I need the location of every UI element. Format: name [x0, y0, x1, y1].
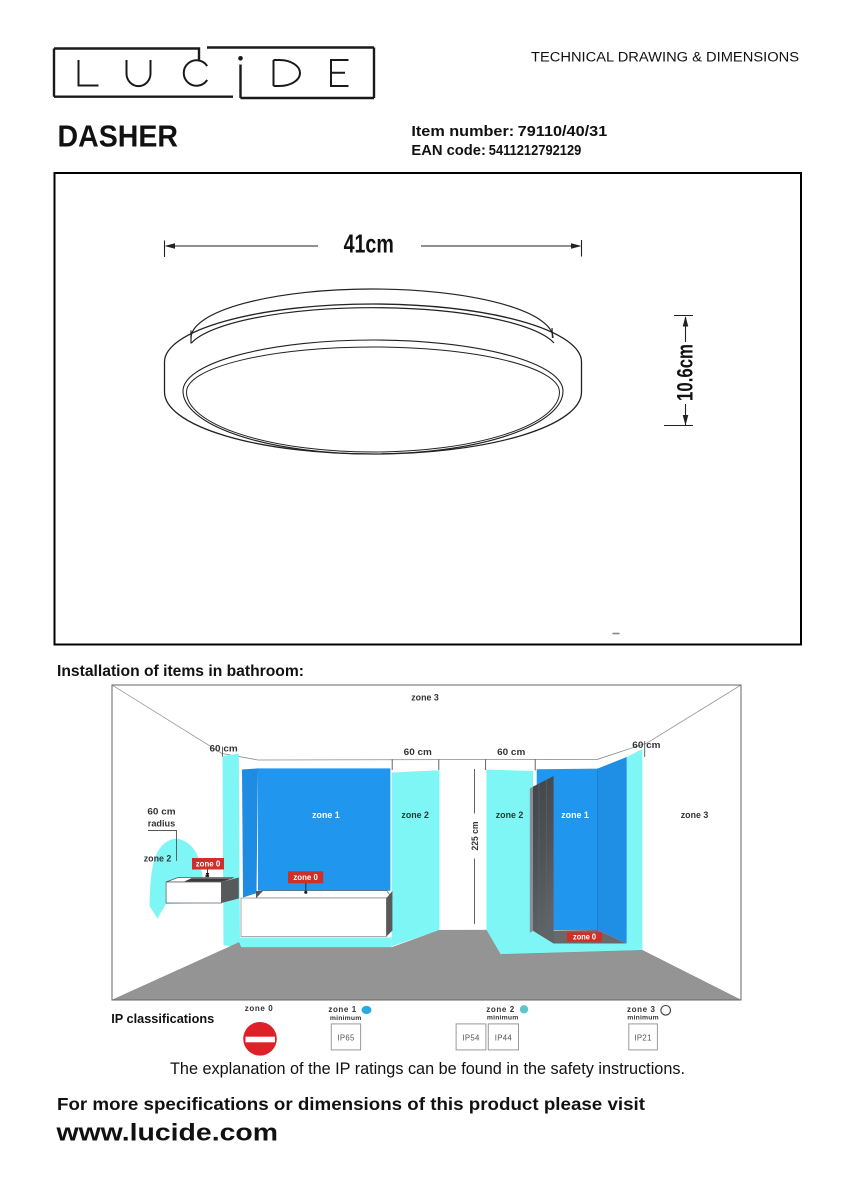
- svg-text:zone 0: zone 0: [196, 859, 221, 869]
- svg-text:zone 1: zone 1: [312, 810, 340, 820]
- svg-text:www.lucide.com: www.lucide.com: [55, 1120, 278, 1147]
- svg-text:zone 2: zone 2: [401, 810, 429, 820]
- svg-text:zone 1: zone 1: [328, 1005, 357, 1014]
- svg-text:zone 0: zone 0: [573, 932, 597, 941]
- svg-text:radius: radius: [148, 819, 176, 829]
- svg-text:EAN code:: EAN code:: [411, 143, 486, 159]
- svg-text:IP44: IP44: [495, 1033, 513, 1042]
- svg-text:Item number:: Item number:: [411, 124, 514, 140]
- svg-text:IP21: IP21: [634, 1033, 651, 1042]
- svg-text:zone 2: zone 2: [144, 854, 172, 864]
- svg-text:minimum: minimum: [330, 1015, 362, 1022]
- svg-text:60 cm: 60 cm: [147, 807, 175, 817]
- svg-text:zone 0: zone 0: [245, 1004, 274, 1013]
- svg-text:zone 3: zone 3: [627, 1005, 656, 1014]
- svg-text:60 cm: 60 cm: [210, 744, 238, 754]
- svg-text:zone 3: zone 3: [681, 810, 709, 820]
- svg-text:225 cm: 225 cm: [470, 822, 480, 851]
- svg-text:minimum: minimum: [487, 1014, 519, 1021]
- svg-text:zone 0: zone 0: [293, 872, 318, 882]
- svg-text:79110/40/31: 79110/40/31: [518, 124, 608, 140]
- svg-text:IP54: IP54: [462, 1033, 480, 1042]
- svg-text:zone 2: zone 2: [486, 1005, 515, 1014]
- svg-text:60 cm: 60 cm: [497, 747, 525, 757]
- svg-text:DASHER: DASHER: [58, 120, 179, 154]
- svg-text:60 cm: 60 cm: [404, 747, 432, 757]
- svg-text:zone 3: zone 3: [411, 693, 439, 703]
- svg-text:41cm: 41cm: [344, 229, 394, 259]
- svg-text:IP65: IP65: [337, 1033, 355, 1042]
- svg-text:5411212792129: 5411212792129: [489, 143, 582, 159]
- svg-text:IP classifications: IP classifications: [111, 1011, 214, 1026]
- svg-text:60 cm: 60 cm: [632, 740, 660, 750]
- svg-text:For more specifications or dim: For more specifications or dimensions of…: [57, 1094, 645, 1114]
- svg-text:minimum: minimum: [627, 1014, 659, 1021]
- svg-text:Installation of items in bathr: Installation of items in bathroom:: [57, 663, 304, 680]
- svg-text:zone 1: zone 1: [561, 810, 589, 820]
- svg-text:zone 2: zone 2: [496, 810, 524, 820]
- svg-text:TECHNICAL DRAWING & DIMENSIONS: TECHNICAL DRAWING & DIMENSIONS: [531, 50, 799, 65]
- svg-text:The explanation of the IP rati: The explanation of the IP ratings can be…: [170, 1060, 685, 1078]
- svg-text:10.6cm: 10.6cm: [673, 344, 698, 401]
